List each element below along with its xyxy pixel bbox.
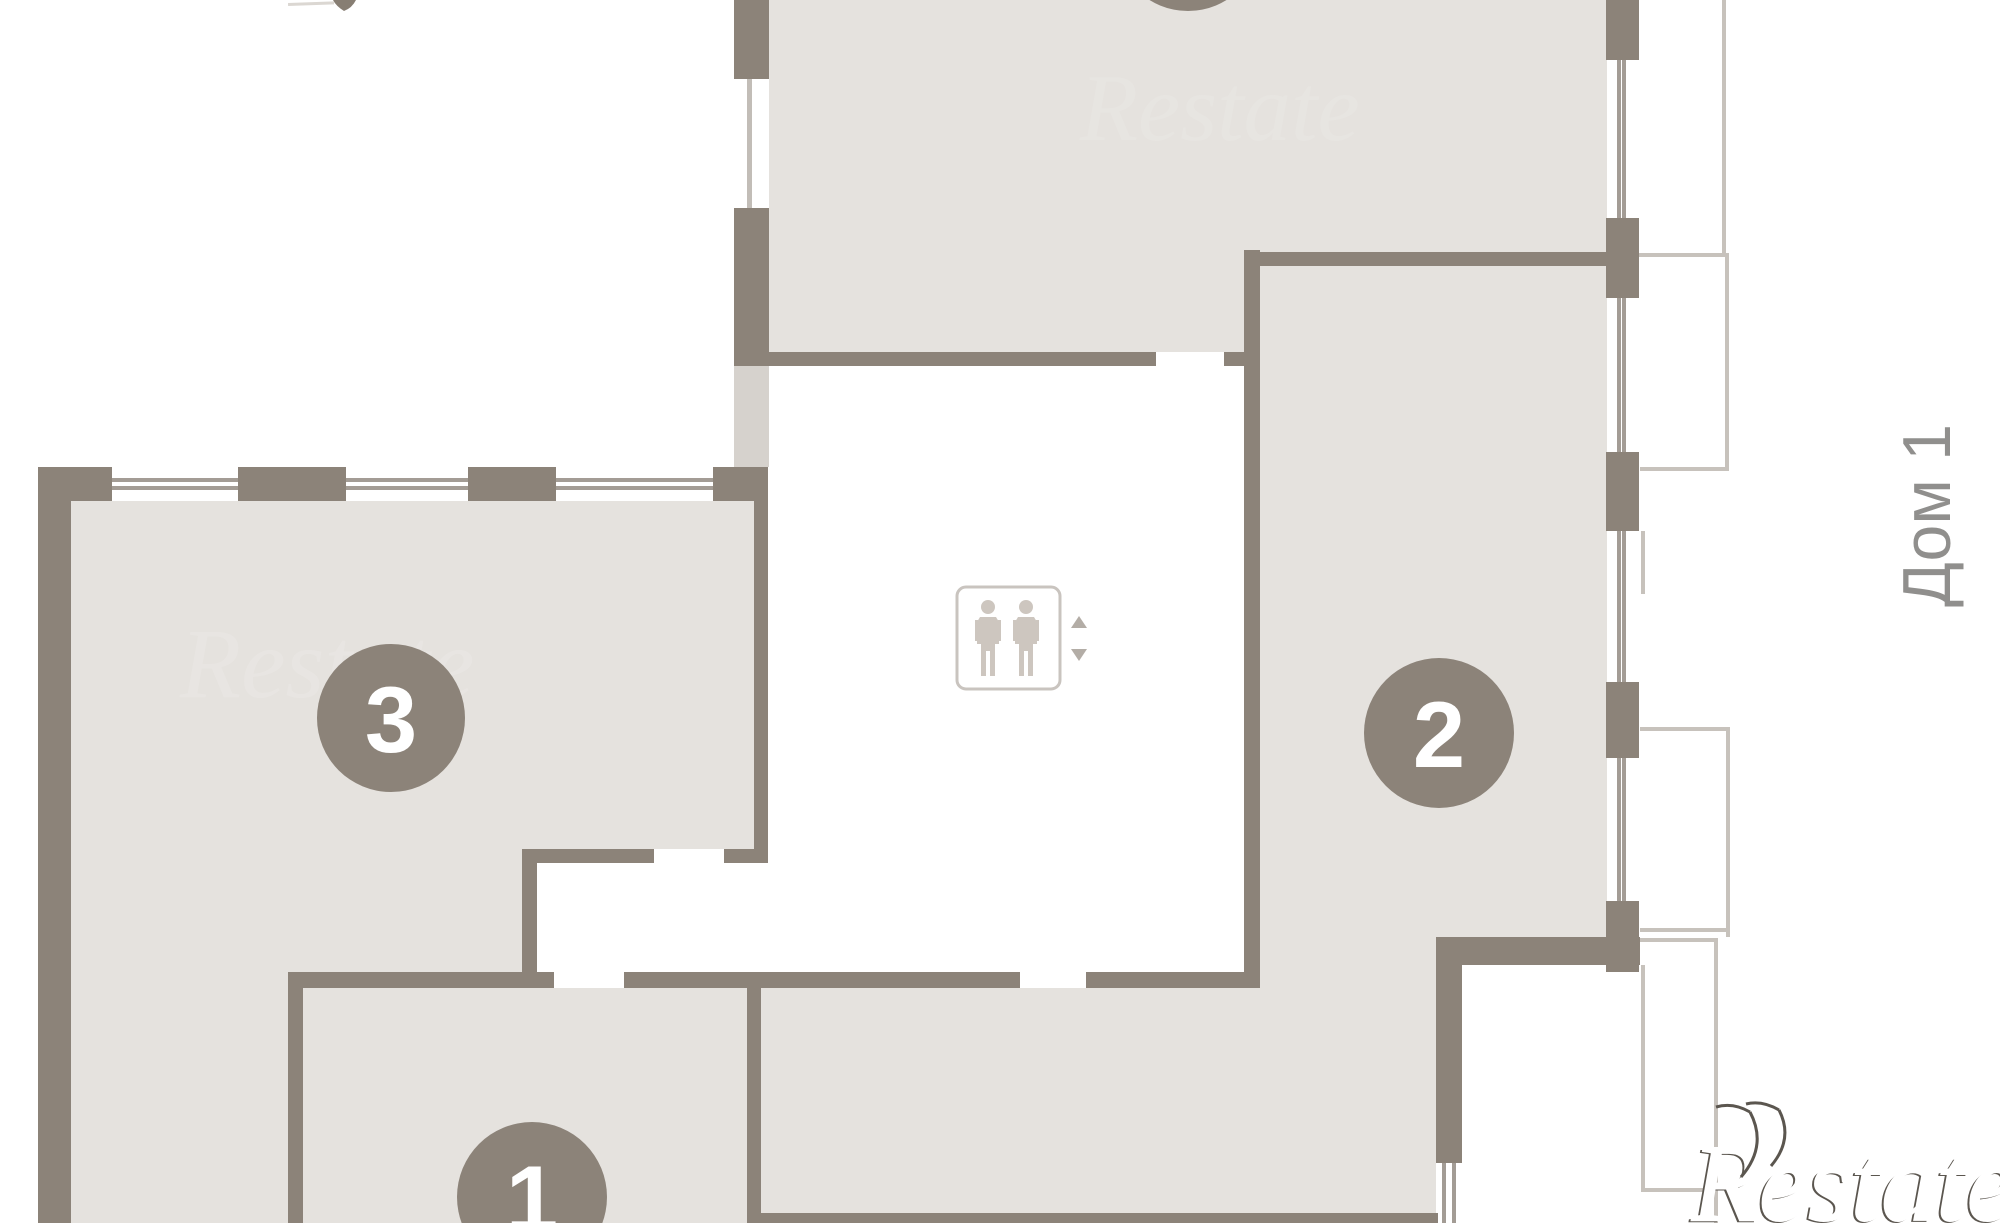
svg-text:2: 2: [1413, 682, 1465, 787]
svg-text:Restate: Restate: [1691, 1121, 2000, 1223]
svg-text:3: 3: [365, 667, 417, 772]
svg-text:Дом 1: Дом 1: [1889, 424, 1965, 607]
svg-text:1: 1: [506, 1146, 558, 1223]
svg-text:Restate: Restate: [1079, 55, 1360, 161]
